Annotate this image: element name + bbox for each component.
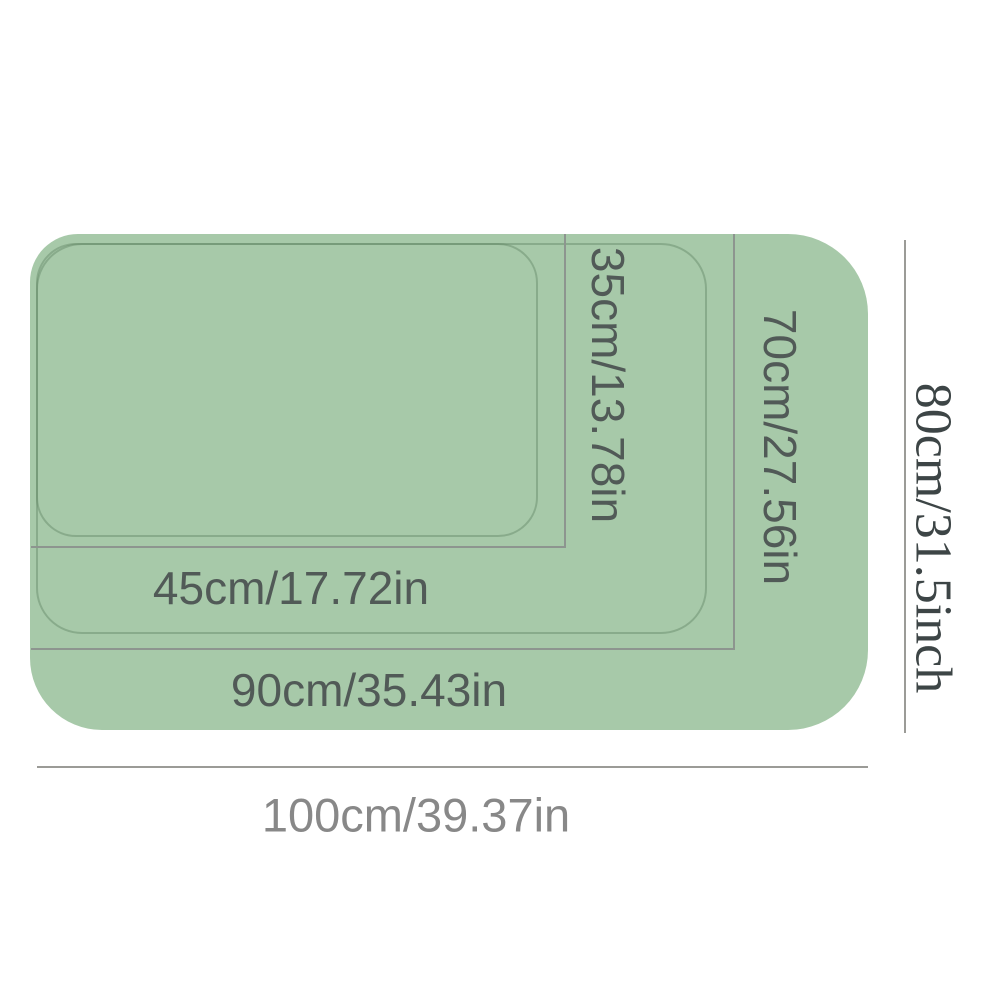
mat-small-right-edge — [564, 234, 566, 548]
label-medium-height: 70cm/27.56in — [753, 309, 807, 585]
mat-medium-bottom-edge — [31, 648, 735, 650]
mat-small-bottom-edge — [31, 546, 566, 548]
mat-small-inner-outline — [36, 243, 538, 537]
label-large-width: 100cm/39.37in — [262, 788, 570, 843]
product-size-diagram: 45cm/17.72in 90cm/35.43in 35cm/13.78in 7… — [0, 0, 1000, 1000]
mat-medium-right-edge — [733, 234, 735, 649]
label-medium-width: 90cm/35.43in — [231, 663, 507, 717]
measure-line-right — [904, 240, 906, 733]
measure-line-bottom — [37, 766, 868, 768]
label-small-height: 35cm/13.78in — [581, 247, 635, 523]
label-small-width: 45cm/17.72in — [153, 561, 429, 615]
label-large-height: 80cm/31.5inch — [904, 383, 963, 694]
